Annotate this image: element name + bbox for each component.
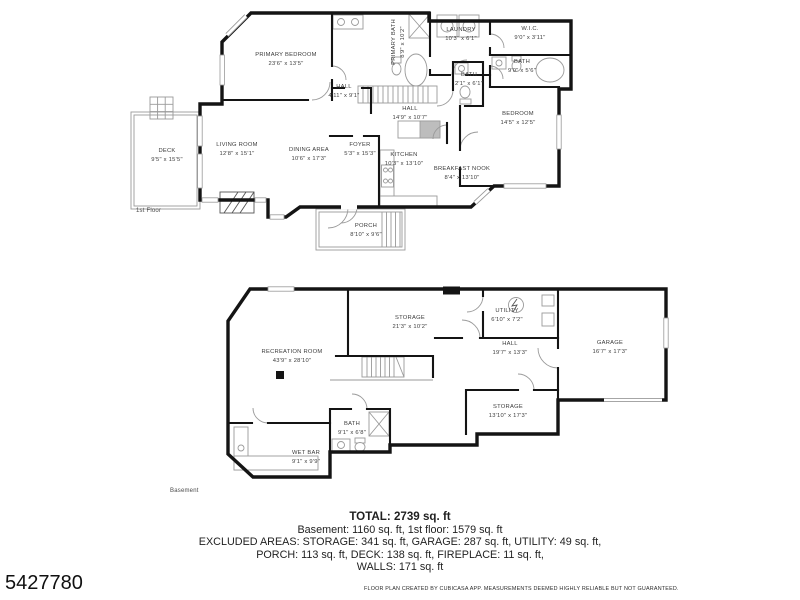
room-label-wet-bar: WET BAR9'1" x 9'9" — [292, 449, 320, 467]
room-label-living-room: LIVING ROOM12'8" x 15'1" — [216, 141, 257, 159]
floor-plan-page: PRIMARY BEDROOM23'6" x 13'5" PRIMARY BAT… — [0, 0, 800, 600]
room-label-laundry: LAUNDRY10'3" x 6'1" — [445, 26, 477, 44]
listing-id: 5427780 — [5, 572, 83, 595]
first-floor-plan — [131, 13, 571, 250]
garage-door-icon — [604, 397, 662, 403]
disclaimer-text: FLOOR PLAN CREATED BY CUBICASA APP. MEAS… — [364, 586, 679, 592]
sink-icon — [492, 57, 506, 69]
chimney-block — [443, 287, 460, 295]
shower-icon — [409, 14, 430, 38]
bathtub-icon — [405, 54, 427, 86]
room-label-small-bath: BATH2'1" x 6'1" — [455, 71, 483, 89]
room-label-recreation-room: RECREATION ROOM43'9" x 28'10" — [262, 348, 323, 366]
room-label-hall-small: HALL4'11" x 9'1" — [328, 83, 359, 101]
first-floor-title: 1st Floor — [136, 208, 161, 214]
room-label-basement-bath: BATH9'1" x 6'8" — [338, 420, 366, 438]
basement-title: Basement — [170, 488, 199, 494]
room-label-garage: GARAGE16'7" x 17'3" — [592, 339, 627, 357]
room-label-bedroom: BEDROOM14'5" x 12'5" — [500, 110, 535, 128]
area-summary: TOTAL: 2739 sq. ft Basement: 1160 sq. ft… — [0, 511, 800, 574]
room-label-foyer: FOYER5'3" x 15'3" — [344, 141, 376, 159]
room-label-primary-bath: PRIMARY BATH8'9" x 10'2" — [390, 19, 408, 65]
toilet-icon — [355, 438, 365, 452]
room-label-kitchen: KITCHEN10'3" x 13'10" — [385, 151, 424, 169]
room-label-hall: HALL14'9" x 10'7" — [392, 105, 427, 123]
total-area: TOTAL: 2739 sq. ft — [0, 511, 800, 524]
room-label-basement-hall: HALL19'7" x 13'3" — [492, 340, 527, 358]
room-label-breakfast-nook: BREAKFAST NOOK8'4" x 13'10" — [434, 165, 490, 183]
room-label-storage-lower: STORAGE13'10" x 17'3" — [489, 403, 528, 421]
fireplace-icon — [276, 371, 284, 379]
excluded-areas-line1: EXCLUDED AREAS: STORAGE: 341 sq. ft, GAR… — [0, 536, 800, 549]
room-label-storage-upper: STORAGE21'3" x 10'2" — [392, 314, 427, 332]
floor-areas: Basement: 1160 sq. ft, 1st floor: 1579 s… — [0, 524, 800, 537]
stairs-icon — [362, 357, 404, 377]
room-label-porch: PORCH8'10" x 9'6" — [350, 222, 382, 240]
room-label-bath: BATH9'0" x 5'6" — [508, 58, 536, 76]
basement-stairs — [330, 357, 433, 380]
bathtub-icon — [536, 58, 564, 82]
sink-icon — [332, 439, 350, 451]
shower-icon — [369, 412, 389, 436]
room-label-primary-bedroom: PRIMARY BEDROOM23'6" x 13'5" — [255, 51, 317, 69]
room-label-dining-area: DINING AREA10'6" x 17'3" — [289, 146, 329, 164]
excluded-areas-line3: WALLS: 171 sq. ft — [0, 561, 800, 574]
room-label-utility: UTILITY6'10" x 7'2" — [491, 307, 523, 325]
primary-bath-fixtures — [333, 14, 430, 86]
room-label-deck: DECK9'5" x 15'5" — [151, 147, 183, 165]
fireplace-icon — [220, 192, 254, 213]
excluded-areas-line2: PORCH: 113 sq. ft, DECK: 138 sq. ft, FIR… — [0, 549, 800, 562]
room-label-wic: W.I.C.9'0" x 3'11" — [514, 25, 545, 43]
